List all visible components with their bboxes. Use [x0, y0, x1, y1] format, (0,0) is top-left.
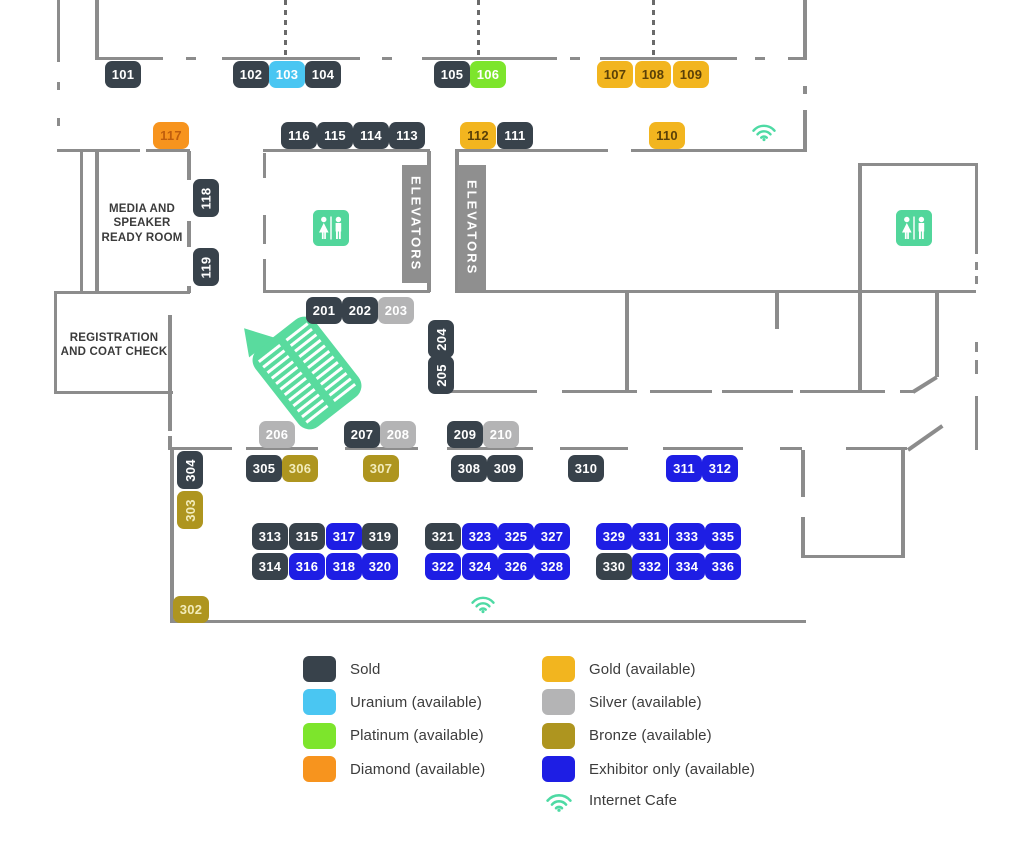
booth-number: 310 — [575, 461, 598, 476]
wall-segment — [263, 290, 430, 293]
booth-323[interactable]: 323 — [462, 523, 498, 550]
wall-segment — [600, 57, 737, 60]
booth-104[interactable]: 104 — [305, 61, 341, 88]
booth-204[interactable]: 204 — [428, 320, 454, 358]
internet-cafe-wifi-icon — [751, 121, 777, 147]
legend-swatch-uranium — [303, 689, 336, 715]
booth-number: 204 — [434, 328, 449, 351]
booth-325[interactable]: 325 — [498, 523, 534, 550]
legend-label-diamond: Diamond (available) — [350, 756, 485, 782]
booth-210[interactable]: 210 — [483, 421, 519, 448]
legend-label-sold: Sold — [350, 656, 380, 682]
registration-coat-check-label: REGISTRATION AND COAT CHECK — [56, 331, 172, 360]
wall-segment — [775, 293, 779, 329]
wall-segment — [263, 149, 430, 152]
booth-319[interactable]: 319 — [362, 523, 398, 550]
wall-segment — [858, 293, 862, 392]
booth-201[interactable]: 201 — [306, 297, 342, 324]
booth-327[interactable]: 327 — [534, 523, 570, 550]
booth-number: 102 — [240, 67, 263, 82]
booth-number: 332 — [639, 559, 662, 574]
booth-333[interactable]: 333 — [669, 523, 705, 550]
booth-number: 119 — [199, 256, 214, 278]
wall-segment — [447, 390, 537, 393]
booth-number: 110 — [656, 128, 678, 143]
booth-number: 305 — [253, 461, 276, 476]
booth-332[interactable]: 332 — [632, 553, 668, 580]
booth-305[interactable]: 305 — [246, 455, 282, 482]
wall-segment — [54, 291, 190, 294]
wall-segment — [858, 163, 862, 295]
booth-number: 107 — [604, 67, 627, 82]
booth-328[interactable]: 328 — [534, 553, 570, 580]
booth-number: 118 — [199, 187, 214, 209]
media-speaker-ready-room-label: MEDIA AND SPEAKER READY ROOM — [84, 202, 200, 245]
wall-segment — [263, 259, 266, 291]
booth-109[interactable]: 109 — [673, 61, 709, 88]
wall-segment — [901, 450, 905, 557]
booth-number: 205 — [434, 364, 449, 387]
wall-segment — [222, 57, 360, 60]
booth-207[interactable]: 207 — [344, 421, 380, 448]
wall-segment — [80, 151, 83, 293]
wall-segment — [263, 153, 266, 178]
wall-segment — [975, 360, 978, 374]
wall-segment — [146, 149, 190, 152]
booth-106[interactable]: 106 — [470, 61, 506, 88]
booth-number: 114 — [360, 128, 382, 143]
legend-swatch-exhibitor — [542, 756, 575, 782]
legend-swatch-diamond — [303, 756, 336, 782]
booth-206[interactable]: 206 — [259, 421, 295, 448]
booth-324[interactable]: 324 — [462, 553, 498, 580]
booth-317[interactable]: 317 — [326, 523, 362, 550]
booth-number: 321 — [432, 529, 455, 544]
wall-segment — [975, 276, 978, 284]
booth-number: 101 — [112, 67, 135, 82]
booth-107[interactable]: 107 — [597, 61, 633, 88]
elevator-label: ELEVATORS — [465, 180, 480, 275]
booth-number: 326 — [505, 559, 528, 574]
wall-segment — [95, 0, 99, 60]
legend-swatch-platinum — [303, 723, 336, 749]
booth-number: 104 — [312, 67, 335, 82]
booth-number: 109 — [680, 67, 703, 82]
booth-111[interactable]: 111 — [497, 122, 533, 149]
booth-number: 208 — [387, 427, 410, 442]
booth-205[interactable]: 205 — [428, 356, 454, 394]
wall-segment — [975, 396, 978, 450]
wall-segment — [560, 447, 628, 450]
booth-number: 206 — [266, 427, 289, 442]
elevator-bank-2: ELEVATORS — [458, 165, 486, 290]
wall-segment — [170, 620, 806, 623]
legend-label-platinum: Platinum (available) — [350, 723, 484, 749]
booth-number: 314 — [259, 559, 282, 574]
booth-number: 322 — [432, 559, 455, 574]
booth-105[interactable]: 105 — [434, 61, 470, 88]
booth-322[interactable]: 322 — [425, 553, 461, 580]
booth-number: 325 — [505, 529, 528, 544]
floor-plan: ELEVATORS ELEVATORS MEDIA AND SPEAKER RE… — [0, 0, 1024, 868]
booth-308[interactable]: 308 — [451, 455, 487, 482]
wall-segment — [722, 390, 793, 393]
booth-number: 307 — [370, 461, 393, 476]
wall-segment — [168, 394, 172, 431]
elevator-bank-1: ELEVATORS — [402, 165, 430, 283]
elevator-label: ELEVATORS — [409, 176, 424, 271]
wall-segment — [801, 450, 805, 497]
booth-number: 330 — [603, 559, 626, 574]
booth-202[interactable]: 202 — [342, 297, 378, 324]
booth-number: 113 — [396, 128, 418, 143]
booth-102[interactable]: 102 — [233, 61, 269, 88]
booth-number: 108 — [642, 67, 665, 82]
wall-segment — [800, 390, 885, 393]
booth-318[interactable]: 318 — [326, 553, 362, 580]
booth-313[interactable]: 313 — [252, 523, 288, 550]
booth-number: 304 — [183, 459, 198, 482]
wall-segment — [803, 86, 807, 94]
booth-number: 319 — [369, 529, 392, 544]
legend-label-exhibitor: Exhibitor only (available) — [589, 756, 755, 782]
dashed-wall-segment — [284, 0, 287, 57]
dashed-wall-segment — [652, 0, 655, 57]
booth-112[interactable]: 112 — [460, 122, 496, 149]
booth-number: 333 — [676, 529, 699, 544]
booth-number: 308 — [458, 461, 481, 476]
booth-304[interactable]: 304 — [177, 451, 203, 489]
wall-segment — [801, 517, 805, 557]
booth-number: 323 — [469, 529, 492, 544]
booth-119[interactable]: 119 — [193, 248, 219, 286]
booth-307[interactable]: 307 — [363, 455, 399, 482]
booth-306[interactable]: 306 — [282, 455, 318, 482]
wall-segment — [455, 149, 608, 152]
booth-311[interactable]: 311 — [666, 455, 702, 482]
booth-101[interactable]: 101 — [105, 61, 141, 88]
booth-number: 306 — [289, 461, 312, 476]
booth-208[interactable]: 208 — [380, 421, 416, 448]
booth-329[interactable]: 329 — [596, 523, 632, 550]
wall-segment — [650, 390, 712, 393]
booth-315[interactable]: 315 — [289, 523, 325, 550]
booth-number: 316 — [296, 559, 319, 574]
wall-segment — [858, 163, 978, 166]
legend-label-uranium: Uranium (available) — [350, 689, 482, 715]
legend-label-bronze: Bronze (available) — [589, 723, 712, 749]
booth-number: 116 — [288, 128, 310, 143]
diagonal-wall-segment — [912, 375, 938, 393]
wall-segment — [935, 293, 939, 377]
booth-316[interactable]: 316 — [289, 553, 325, 580]
booth-302[interactable]: 302 — [173, 596, 209, 623]
wall-segment — [631, 149, 807, 152]
booth-116[interactable]: 116 — [281, 122, 317, 149]
wall-segment — [186, 57, 196, 60]
wall-segment — [562, 390, 637, 393]
wall-segment — [97, 57, 163, 60]
booth-336[interactable]: 336 — [705, 553, 741, 580]
wall-segment — [172, 447, 232, 450]
booth-320[interactable]: 320 — [362, 553, 398, 580]
booth-number: 327 — [541, 529, 564, 544]
booth-number: 324 — [469, 559, 492, 574]
dashed-wall-segment — [477, 0, 480, 57]
booth-326[interactable]: 326 — [498, 553, 534, 580]
booth-335[interactable]: 335 — [705, 523, 741, 550]
booth-number: 209 — [454, 427, 477, 442]
wall-segment — [803, 0, 807, 60]
booth-number: 112 — [467, 128, 489, 143]
booth-number: 303 — [183, 499, 198, 522]
booth-113[interactable]: 113 — [389, 122, 425, 149]
wall-segment — [263, 215, 266, 244]
booth-number: 105 — [441, 67, 464, 82]
booth-number: 329 — [603, 529, 626, 544]
legend-swatch-silver — [542, 689, 575, 715]
booth-number: 115 — [324, 128, 346, 143]
booth-115[interactable]: 115 — [317, 122, 353, 149]
wall-segment — [57, 0, 60, 62]
booth-number: 103 — [276, 67, 299, 82]
booth-number: 320 — [369, 559, 392, 574]
wall-segment — [846, 447, 906, 450]
booth-330[interactable]: 330 — [596, 553, 632, 580]
booth-number: 202 — [349, 303, 372, 318]
booth-number: 312 — [709, 461, 732, 476]
booth-number: 201 — [313, 303, 336, 318]
booth-310[interactable]: 310 — [568, 455, 604, 482]
booth-331[interactable]: 331 — [632, 523, 668, 550]
diagonal-wall-segment — [907, 424, 944, 451]
booth-number: 106 — [477, 67, 500, 82]
legend-swatch-sold — [303, 656, 336, 682]
legend-internet-cafe-wifi-icon — [545, 790, 573, 818]
booth-number: 311 — [673, 461, 695, 476]
booth-number: 328 — [541, 559, 564, 574]
internet-cafe-wifi-icon — [470, 593, 496, 619]
booth-number: 334 — [676, 559, 699, 574]
booth-number: 302 — [180, 602, 203, 617]
booth-303[interactable]: 303 — [177, 491, 203, 529]
restroom-icon — [313, 210, 349, 251]
wall-segment — [57, 118, 60, 126]
booth-314[interactable]: 314 — [252, 553, 288, 580]
wall-segment — [975, 342, 978, 352]
restroom-icon — [896, 210, 932, 251]
wall-segment — [570, 57, 580, 60]
wall-segment — [382, 57, 392, 60]
booth-number: 203 — [385, 303, 408, 318]
booth-118[interactable]: 118 — [193, 179, 219, 217]
booth-114[interactable]: 114 — [353, 122, 389, 149]
booth-number: 318 — [333, 559, 356, 574]
booth-number: 331 — [639, 529, 662, 544]
booth-203[interactable]: 203 — [378, 297, 414, 324]
legend-label-internet-cafe: Internet Cafe — [589, 788, 677, 814]
booth-110[interactable]: 110 — [649, 122, 685, 149]
booth-number: 207 — [351, 427, 374, 442]
booth-number: 111 — [504, 128, 525, 143]
wall-segment — [803, 110, 807, 152]
booth-number: 315 — [296, 529, 319, 544]
wall-segment — [54, 391, 173, 394]
booth-309[interactable]: 309 — [487, 455, 523, 482]
wall-segment — [755, 57, 765, 60]
booth-number: 317 — [333, 529, 356, 544]
wall-segment — [187, 151, 191, 180]
booth-number: 309 — [494, 461, 517, 476]
wall-segment — [975, 163, 978, 254]
booth-103[interactable]: 103 — [269, 61, 305, 88]
wall-segment — [625, 293, 629, 391]
wall-segment — [780, 447, 802, 450]
legend-label-gold: Gold (available) — [589, 656, 696, 682]
wall-segment — [788, 57, 806, 60]
booth-number: 313 — [259, 529, 282, 544]
booth-117[interactable]: 117 — [153, 122, 189, 149]
booth-312[interactable]: 312 — [702, 455, 738, 482]
booth-number: 117 — [160, 128, 182, 143]
booth-108[interactable]: 108 — [635, 61, 671, 88]
booth-334[interactable]: 334 — [669, 553, 705, 580]
booth-number: 335 — [712, 529, 735, 544]
wall-segment — [422, 57, 557, 60]
wall-segment — [170, 450, 174, 622]
legend-swatch-bronze — [542, 723, 575, 749]
wall-segment — [975, 262, 978, 270]
booth-209[interactable]: 209 — [447, 421, 483, 448]
booth-number: 336 — [712, 559, 735, 574]
wall-segment — [57, 82, 60, 90]
wall-segment — [663, 447, 743, 450]
booth-number: 210 — [490, 427, 513, 442]
wall-segment — [801, 555, 905, 558]
booth-321[interactable]: 321 — [425, 523, 461, 550]
legend-swatch-gold — [542, 656, 575, 682]
wall-segment — [455, 290, 976, 293]
legend-label-silver: Silver (available) — [589, 689, 702, 715]
